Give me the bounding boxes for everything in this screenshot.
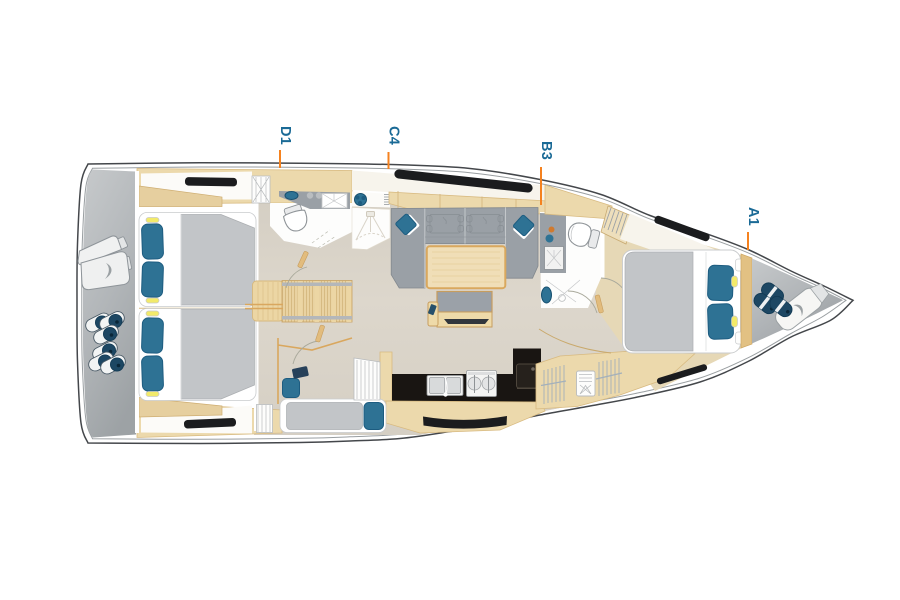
svg-text:C4: C4 bbox=[386, 126, 402, 145]
svg-text:D1: D1 bbox=[277, 126, 293, 145]
svg-text:A1: A1 bbox=[745, 207, 761, 226]
svg-text:B3: B3 bbox=[538, 141, 554, 160]
